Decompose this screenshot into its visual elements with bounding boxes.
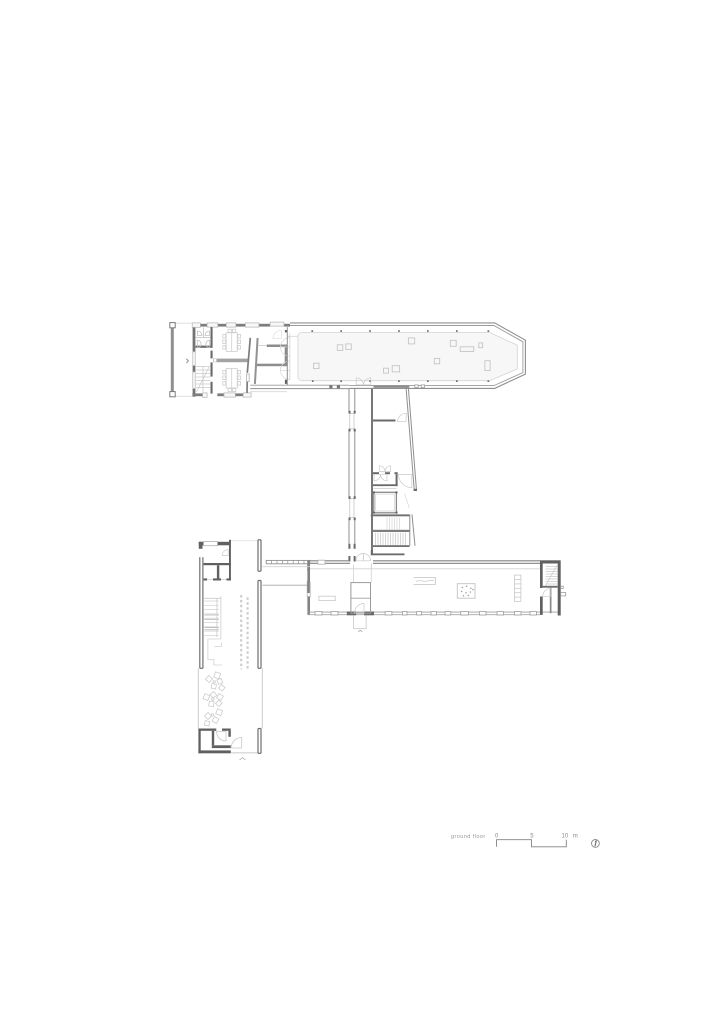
svg-text:5: 5 [530, 834, 534, 840]
svg-text:0: 0 [495, 834, 499, 840]
svg-text:ground floor: ground floor [451, 834, 486, 840]
svg-text:10: 10 [562, 834, 569, 840]
svg-text:m: m [573, 834, 578, 840]
